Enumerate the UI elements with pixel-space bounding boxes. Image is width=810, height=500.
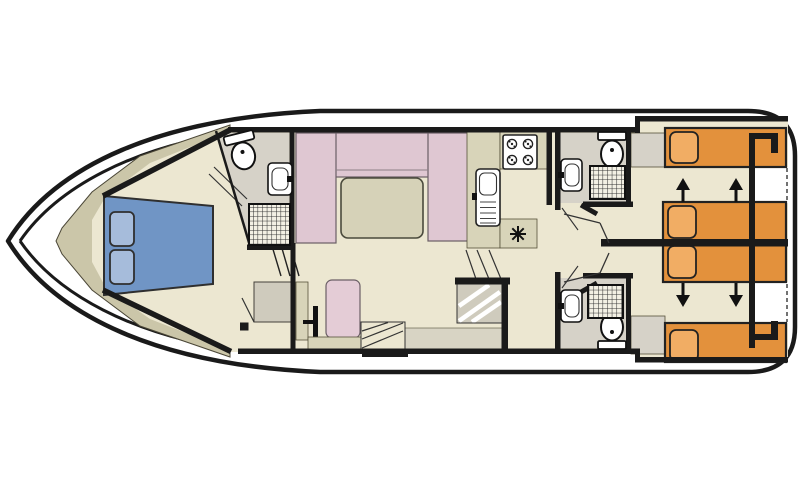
helm-side-cabinet [296,282,308,340]
understairs-gray [405,328,502,350]
sofa-left-arm [296,133,336,243]
sofa-right-arm [428,133,468,241]
washbasin-icon [558,159,582,191]
helm-console [254,282,291,322]
bow-pillow-2 [110,250,134,284]
aft-pillow-top-single [670,132,698,163]
shower-grid-icon [588,285,623,318]
shower-grid-icon [590,166,625,199]
stern-notch-top [753,167,792,203]
aft-pillow-bottom-double [668,246,696,278]
aft-dressing-bottom [631,316,665,354]
aft-pillow-bottom-single [670,330,698,361]
washbasin-icon [268,163,293,195]
stern-notch-bottom [753,282,792,323]
entry-steps [361,322,405,350]
saloon [296,133,468,243]
boat-floor-plan [0,0,810,500]
vent-star-icon [510,226,526,242]
aft-dressing-top [631,133,665,167]
bow-pillow-1 [110,212,134,246]
stove-4-burner-icon [503,135,537,169]
helm-seat [326,280,360,338]
saloon-table [341,178,423,238]
shower-grid-icon [249,204,290,245]
floor-plan-svg [0,0,810,500]
galley-sink-icon [472,169,500,226]
toilet-icon [598,132,626,168]
washbasin-icon [558,290,582,322]
aft-pillow-top-double [668,206,696,238]
